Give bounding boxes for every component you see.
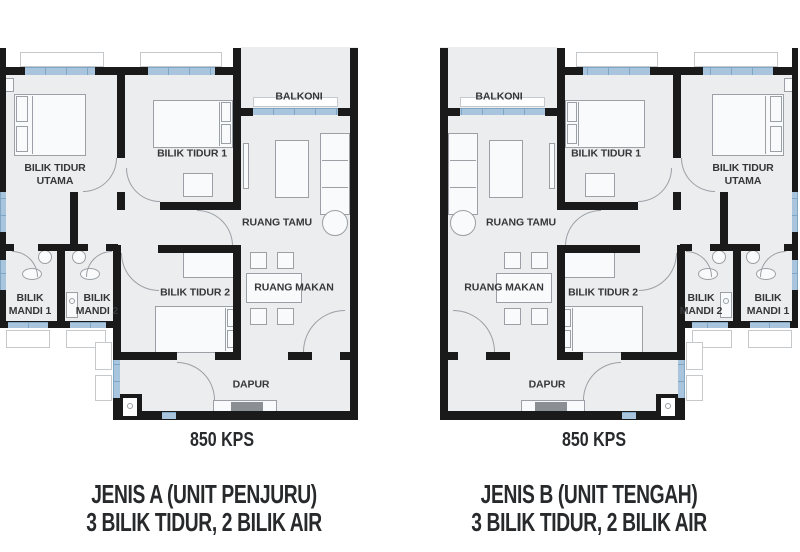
sofa-cushion-line [322, 160, 348, 161]
wall-segment [57, 244, 65, 328]
pillow-icon [16, 126, 28, 152]
pillow-icon [16, 96, 28, 122]
window [148, 67, 215, 75]
unit-a: BILIK TIDUR UTAMA BILIK TIDUR 1 BALKONI … [0, 0, 358, 552]
room-label-ruang-makan: RUANG MAKAN [254, 281, 333, 294]
wall-segment [113, 411, 358, 420]
floorplan-a: BILIK TIDUR UTAMA BILIK TIDUR 1 BALKONI … [0, 0, 358, 420]
round-table-icon [322, 210, 348, 236]
area-label: 850 KPS [562, 429, 626, 452]
area-label: 850 KPS [190, 429, 254, 452]
floorplan-b: BILIK TIDUR UTAMA BILIK TIDUR 1 BALKONI … [440, 0, 798, 420]
bed-line [219, 102, 220, 146]
pillow-icon [770, 96, 782, 122]
wall-segment [117, 67, 125, 158]
ac-unit-icon [686, 342, 703, 370]
balcony-rail-window [460, 108, 545, 115]
tv-cabinet-icon [549, 143, 555, 189]
window [703, 67, 773, 75]
sofa-icon [448, 133, 478, 215]
wall-segment [677, 352, 685, 360]
wall-segment [673, 67, 681, 158]
room-label-bilik-tidur-utama: BILIK TIDUR UTAMA [13, 162, 97, 188]
bed-line [225, 308, 226, 351]
chair-icon [250, 308, 267, 325]
wall-segment [448, 352, 458, 360]
round-table-icon [450, 210, 476, 236]
room-label-balkoni: BALKONI [475, 90, 522, 103]
room-label-bilik-tidur-utama: BILIK TIDUR UTAMA [701, 162, 785, 188]
sofa-cushion-line [450, 187, 476, 188]
balcony-rail-window [253, 108, 338, 115]
wall-segment [680, 244, 692, 251]
room-label-bilik-mandi-1: BILIK MANDI 1 [741, 292, 795, 318]
toilet-icon [712, 250, 726, 264]
room-label-ruang-tamu: RUANG TAMU [486, 216, 556, 229]
window-sill [140, 52, 222, 67]
room-label-bilik-mandi-1: BILIK MANDI 1 [3, 292, 57, 318]
window [678, 360, 685, 398]
window [583, 67, 650, 75]
wall-segment [70, 192, 78, 244]
room-label-bilik-tidur-1: BILIK TIDUR 1 [157, 147, 227, 160]
unit-b: BILIK TIDUR UTAMA BILIK TIDUR 1 BALKONI … [440, 0, 798, 552]
sofa-cushion-line [450, 160, 476, 161]
room-label-bilik-tidur-2: BILIK TIDUR 2 [160, 286, 230, 299]
chair-icon [250, 252, 267, 269]
ac-unit-icon [686, 375, 703, 401]
room-label-dapur: DAPUR [233, 378, 270, 391]
wall-segment [158, 245, 241, 253]
pillow-icon [221, 102, 231, 122]
tv-cabinet-icon [243, 143, 249, 189]
window [25, 67, 95, 75]
wall-segment [106, 244, 118, 251]
coffee-table-icon [275, 140, 309, 198]
pillow-icon [770, 126, 782, 152]
coffee-table-icon [489, 140, 523, 198]
wall-segment [440, 48, 448, 420]
wall-segment [241, 108, 253, 116]
wall-segment [233, 48, 241, 116]
window-sill [6, 330, 50, 348]
room-label-bilik-tidur-1: BILIK TIDUR 1 [571, 147, 641, 160]
chair-icon [504, 252, 521, 269]
room-label-balkoni: BALKONI [275, 90, 322, 103]
wall-segment [720, 192, 728, 244]
floorplan-canvas: BILIK TIDUR UTAMA BILIK TIDUR 1 BALKONI … [0, 0, 800, 552]
wall-segment [557, 116, 565, 210]
wall-segment [288, 352, 312, 360]
desk-icon [585, 173, 615, 197]
window [8, 322, 48, 328]
wall-segment [0, 244, 14, 251]
bed-line [572, 308, 573, 351]
bed-line [765, 96, 766, 154]
window [70, 322, 106, 328]
wall-segment [784, 244, 798, 251]
room-label-bilik-mandi-2: BILIK MANDI 2 [70, 292, 124, 318]
unit-rooms-caption: 3 BILIK TIDUR, 2 BILIK AIR [86, 507, 322, 538]
pillow-icon [567, 124, 577, 144]
window [792, 192, 798, 232]
sofa-cushion-line [322, 187, 348, 188]
wall-segment [673, 192, 681, 210]
bed-line [578, 102, 579, 146]
utility-niche [118, 394, 142, 420]
pillow-icon [567, 102, 577, 122]
pillow-icon [221, 124, 231, 144]
wall-segment [233, 116, 241, 210]
room-label-ruang-makan: RUANG MAKAN [464, 281, 543, 294]
wall-segment [545, 108, 557, 116]
wall-segment [338, 108, 350, 116]
room-label-ruang-tamu: RUANG TAMU [242, 216, 312, 229]
wall-segment [113, 352, 121, 360]
window [750, 322, 790, 328]
window [162, 412, 176, 419]
wall-segment [733, 244, 741, 328]
wall-segment [621, 352, 677, 360]
wall-segment [561, 202, 638, 210]
chair-icon [277, 252, 294, 269]
wall-segment [233, 245, 241, 353]
ac-unit-icon [95, 342, 112, 370]
wall-segment [160, 202, 237, 210]
bed-line [32, 96, 33, 154]
wall-segment [121, 352, 177, 360]
toilet-icon [746, 250, 760, 264]
wall-segment [340, 352, 350, 360]
wardrobe-icon [183, 252, 239, 278]
unit-type-caption: JENIS A (UNIT PENJURU) [91, 479, 317, 510]
chair-icon [531, 252, 548, 269]
valve-icon [127, 403, 133, 409]
wall-segment [215, 352, 241, 360]
toilet-icon [72, 250, 86, 264]
window [622, 412, 636, 419]
room-label-dapur: DAPUR [529, 378, 566, 391]
sofa-icon [320, 133, 350, 215]
room-label-bilik-mandi-2: BILIK MANDI 2 [674, 292, 728, 318]
window-sill [576, 52, 658, 67]
chair-icon [277, 308, 294, 325]
window [692, 322, 728, 328]
room-label-bilik-tidur-2: BILIK TIDUR 2 [568, 286, 638, 299]
toilet-icon [38, 250, 52, 264]
unit-rooms-caption: 3 BILIK TIDUR, 2 BILIK AIR [471, 507, 707, 538]
window-sill [20, 52, 104, 67]
window-sill [694, 52, 778, 67]
window [792, 260, 798, 290]
wall-segment [557, 352, 583, 360]
utility-niche [656, 394, 680, 420]
wall-segment [557, 245, 565, 353]
chair-icon [504, 308, 521, 325]
single-bed-icon [565, 100, 645, 148]
wall-segment [117, 192, 125, 210]
wall-segment [486, 352, 510, 360]
ac-unit-icon [95, 375, 112, 401]
chair-icon [531, 308, 548, 325]
wall-segment [557, 245, 640, 253]
wall-segment [440, 411, 685, 420]
unit-type-caption: JENIS B (UNIT TENGAH) [481, 479, 698, 510]
wall-segment [557, 48, 565, 116]
window [113, 360, 120, 398]
window [0, 260, 6, 290]
wall-segment [350, 48, 358, 420]
valve-icon [665, 403, 671, 409]
window-sill [748, 330, 792, 348]
wall-segment [448, 108, 460, 116]
window [0, 192, 6, 232]
desk-icon [183, 173, 213, 197]
wardrobe-icon [559, 252, 615, 278]
